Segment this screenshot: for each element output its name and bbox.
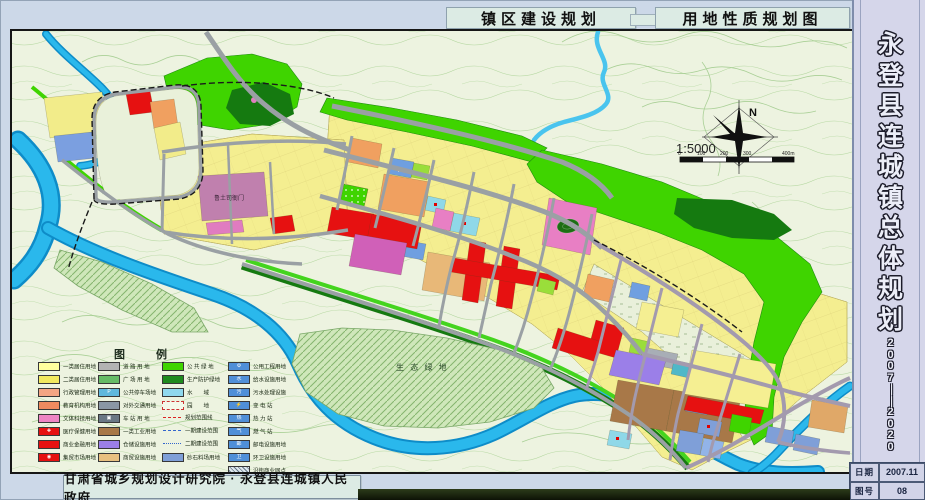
legend-label: 商业金融用地 xyxy=(63,440,96,448)
legend-label: 商贸设施用地 xyxy=(123,453,156,461)
drawing-info-table: 日期 2007.11 图号 08 xyxy=(849,462,925,500)
svg-text:0: 0 xyxy=(678,151,681,157)
legend-item: 一类工业用地 xyxy=(98,427,156,436)
legend-item: 一期建设范围 xyxy=(162,427,218,435)
legend-item: 污污水处理设施 xyxy=(228,388,286,397)
legend-swatch xyxy=(38,401,60,410)
legend-label: 车 站 用 地 xyxy=(123,414,150,422)
legend-swatch xyxy=(38,440,60,449)
bottom-dark-strip xyxy=(358,489,850,500)
sidebar-title-char: 连 xyxy=(878,122,903,153)
sidebar-period-char: — xyxy=(885,396,897,407)
legend-label: 仓储设施用地 xyxy=(123,440,156,448)
legend-swatch: ⚙ xyxy=(228,362,250,371)
legend-swatch xyxy=(98,375,120,384)
legend-label: 污水处理设施 xyxy=(253,388,286,396)
sidebar-title-char: 总 xyxy=(878,213,903,244)
legend-item: 二类居住用地 xyxy=(38,375,96,384)
header-plan-type: 镇区建设规划 xyxy=(446,7,636,29)
legend-swatch: 污 xyxy=(228,388,250,397)
legend-label: 燃 气 站 xyxy=(253,427,273,435)
legend-label: 广 场 用 地 xyxy=(123,375,150,383)
legend-item: ◉集贸市场用地 xyxy=(38,453,96,462)
legend-swatch: 邮 xyxy=(228,440,250,449)
legend-swatch xyxy=(38,375,60,384)
legend-swatch xyxy=(162,362,184,371)
legend-item: ▣车 站 用 地 xyxy=(98,414,150,423)
legend-label: 生产防护绿地 xyxy=(187,375,220,383)
sidebar-period-char: 0 xyxy=(887,361,893,373)
scale-text: 1:5000 xyxy=(676,141,716,156)
legend-label: 行政管理用地 xyxy=(63,388,96,396)
legend-swatch xyxy=(38,362,60,371)
map-label-heritage: 鲁土司衙门 xyxy=(214,194,244,202)
legend-item: 一类居住用地 xyxy=(38,362,96,371)
legend-swatch: ✚ xyxy=(38,427,60,436)
legend-swatch xyxy=(162,441,182,448)
legend-item: 商业金融用地 xyxy=(38,440,96,449)
legend-label: 医疗保健用地 xyxy=(63,427,96,435)
legend-swatch: ◉ xyxy=(38,453,60,462)
sidebar-title-char: 体 xyxy=(878,244,903,275)
header-plan-type-label: 镇区建设规划 xyxy=(481,8,601,29)
legend-swatch xyxy=(98,440,120,449)
header-map-title: 用地性质规划图 xyxy=(655,7,850,29)
info-date-label: 日期 xyxy=(850,463,879,482)
legend-item: 二期建设范围 xyxy=(162,440,218,448)
legend-swatch xyxy=(98,427,120,436)
legend-item: 热热 力 站 xyxy=(228,414,273,423)
legend-label: 教育机构用地 xyxy=(63,401,96,409)
legend-item: 教育机构用地 xyxy=(38,401,96,410)
sidebar-period-char: — xyxy=(885,384,897,395)
sidebar-title-char: 规 xyxy=(878,274,903,305)
legend-swatch: 热 xyxy=(228,414,250,423)
legend-item: P公共停车场地 xyxy=(98,388,156,397)
svg-text:200: 200 xyxy=(720,151,729,157)
header-connector xyxy=(630,14,658,26)
legend-item: ✚医疗保健用地 xyxy=(38,427,96,436)
legend-label: 砂石料场用地 xyxy=(187,453,220,461)
legend-item: 对外交通用地 xyxy=(98,401,156,410)
legend-swatch xyxy=(98,401,120,410)
title-sidebar: 永登县连城镇总体规划 2007——2020 xyxy=(852,0,925,500)
legend-swatch: 水 xyxy=(228,375,250,384)
legend-item: 仓储设施用地 xyxy=(98,440,156,449)
legend-item: 规划范围线 xyxy=(162,414,213,422)
legend-swatch xyxy=(98,362,120,371)
sidebar-period-char: 2 xyxy=(887,407,893,419)
legend-title: 图 例 xyxy=(114,346,181,362)
map-legend: 图 例 一类居住用地二类居住用地行政管理用地教育机构用地文体科技用地✚医疗保健用… xyxy=(38,346,294,474)
legend-swatch xyxy=(162,375,184,384)
legend-item: 广 场 用 地 xyxy=(98,375,150,384)
svg-text:400m: 400m xyxy=(782,151,795,157)
svg-text:100: 100 xyxy=(697,151,706,157)
legend-item: 卫环卫设施用地 xyxy=(228,453,286,462)
legend-label: 一类居住用地 xyxy=(63,362,96,370)
sidebar-title-char: 城 xyxy=(878,152,903,183)
legend-item: 道 路 用 地 xyxy=(98,362,150,371)
credit-box: 甘肃省城乡规划设计研究院 · 永登县连城镇人民政府 xyxy=(63,475,361,499)
legend-label: 二类居住用地 xyxy=(63,375,96,383)
sidebar-period-char: 7 xyxy=(887,373,893,385)
legend-item: 公 共 绿 地 xyxy=(162,362,214,371)
legend-label: 热 力 站 xyxy=(253,414,273,422)
legend-item: 水 域 xyxy=(162,388,209,397)
legend-swatch xyxy=(162,428,182,435)
legend-label: 环卫设施用地 xyxy=(253,453,286,461)
legend-swatch: 气 xyxy=(228,427,250,436)
legend-label: 文体科技用地 xyxy=(63,414,96,422)
legend-label: 二期建设范围 xyxy=(185,440,218,448)
legend-swatch: ▣ xyxy=(98,414,120,423)
legend-swatch: ⚡ xyxy=(228,401,250,410)
sidebar-period-char: 0 xyxy=(887,442,893,454)
legend-item: 文体科技用地 xyxy=(38,414,96,423)
legend-swatch: 卫 xyxy=(228,453,250,462)
info-date-value: 2007.11 xyxy=(879,463,925,482)
legend-label: 一期建设范围 xyxy=(185,427,218,435)
info-number-value: 08 xyxy=(879,482,925,500)
svg-text:300: 300 xyxy=(743,151,752,157)
legend-swatch xyxy=(38,414,60,423)
legend-item: 商贸设施用地 xyxy=(98,453,156,462)
map-label-eco: 生 态 绿 地 xyxy=(396,362,449,372)
legend-label: 集贸市场用地 xyxy=(63,453,96,461)
legend-swatch xyxy=(38,388,60,397)
legend-swatch xyxy=(98,453,120,462)
sidebar-title-char: 登 xyxy=(878,61,903,92)
sidebar-period-vertical: 2007——2020 xyxy=(854,338,925,453)
sidebar-title-char: 划 xyxy=(878,305,903,336)
legend-item: 行政管理用地 xyxy=(38,388,96,397)
legend-item: 邮邮电设施用地 xyxy=(228,440,286,449)
legend-label: 公 共 绿 地 xyxy=(187,362,214,370)
legend-swatch xyxy=(162,453,184,462)
legend-item: 生产防护绿地 xyxy=(162,375,220,384)
sidebar-title-char: 永 xyxy=(878,30,903,61)
legend-label: 对外交通用地 xyxy=(123,401,156,409)
legend-item: ⚙公用工程用地 xyxy=(228,362,286,371)
legend-swatch: P xyxy=(98,388,120,397)
legend-label: 道 路 用 地 xyxy=(123,362,150,370)
legend-label: 公用工程用地 xyxy=(253,362,286,370)
legend-label: 规划范围线 xyxy=(185,414,213,422)
sidebar-title-char: 镇 xyxy=(878,183,903,214)
legend-item: ⚡变 电 站 xyxy=(228,401,273,410)
credit-text: 甘肃省城乡规划设计研究院 · 永登县连城镇人民政府 xyxy=(64,468,360,500)
legend-label: 水 域 xyxy=(187,388,209,396)
header-map-title-label: 用地性质规划图 xyxy=(682,8,822,29)
sidebar-title-char: 县 xyxy=(878,91,903,122)
legend-item: 砂石料场用地 xyxy=(162,453,220,462)
plan-sheet: 镇区建设规划 用地性质规划图 xyxy=(0,0,925,500)
legend-label: 邮电设施用地 xyxy=(253,440,286,448)
legend-label: 一类工业用地 xyxy=(123,427,156,435)
legend-label: 公共停车场地 xyxy=(123,388,156,396)
map-frame: P xyxy=(10,29,854,474)
north-label: N xyxy=(749,107,757,119)
sidebar-title-vertical: 永登县连城镇总体规划 xyxy=(854,30,925,335)
legend-swatch xyxy=(162,388,184,397)
legend-label: 园 地 xyxy=(187,401,209,409)
legend-item: 气燃 气 站 xyxy=(228,427,273,436)
legend-item: 园 地 xyxy=(162,401,209,410)
legend-label: 给水设施用地 xyxy=(253,375,286,383)
legend-swatch xyxy=(162,415,182,422)
legend-swatch xyxy=(162,401,184,410)
legend-label: 变 电 站 xyxy=(253,401,273,409)
info-number-label: 图号 xyxy=(850,482,879,500)
sidebar-period-char: 2 xyxy=(887,430,893,442)
legend-item: 水给水设施用地 xyxy=(228,375,286,384)
sidebar-period-char: 2 xyxy=(887,338,893,350)
